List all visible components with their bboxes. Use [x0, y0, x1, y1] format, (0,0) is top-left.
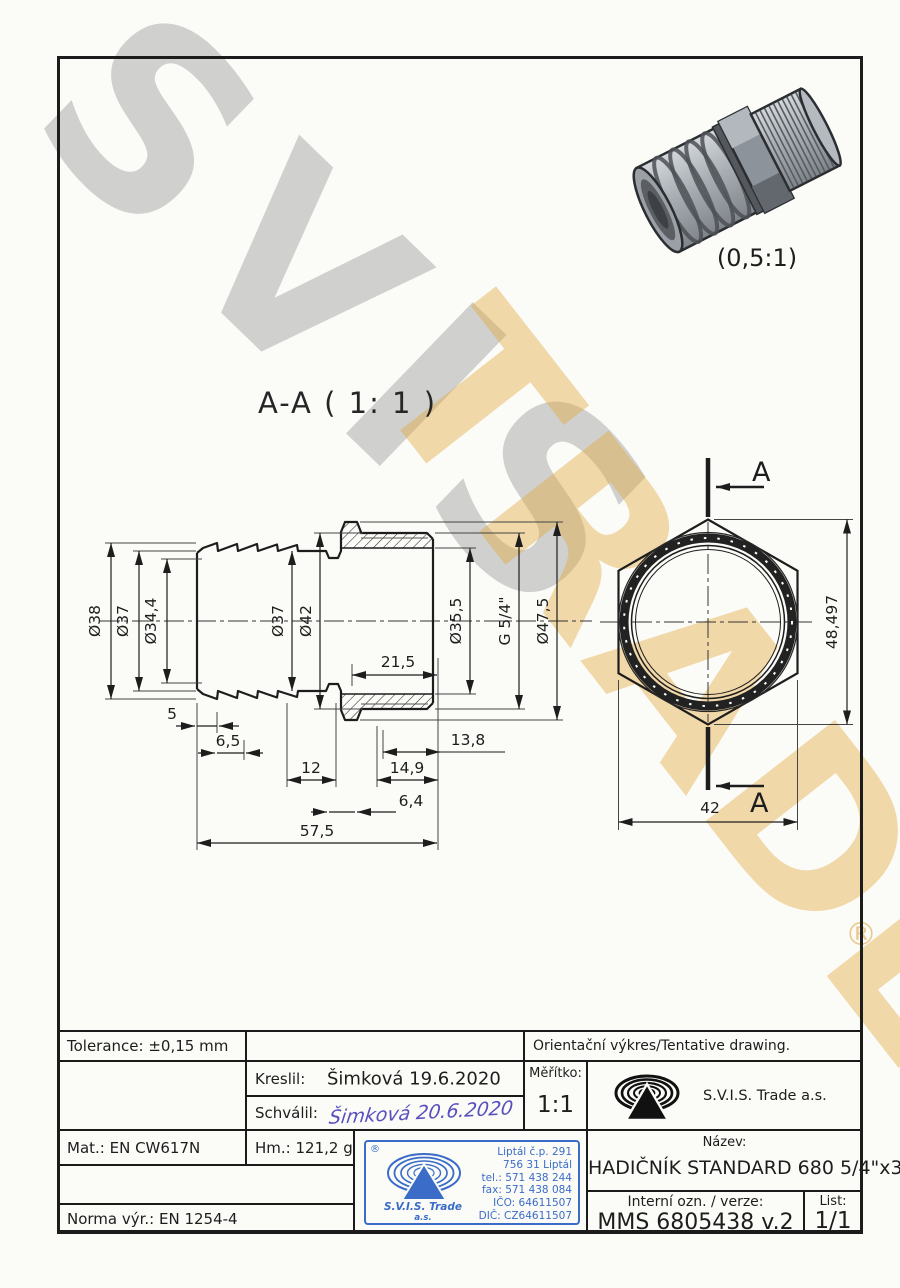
hex-view: A A — [600, 457, 816, 819]
cut-letter-top: A — [752, 457, 771, 488]
hex-dimensions — [619, 520, 854, 831]
dim-dia37-left: Ø37 — [114, 605, 132, 637]
dim-g-thread: G 5/4" — [496, 596, 514, 645]
dim-21-5: 21,5 — [381, 653, 416, 671]
section-view-title: A-A ( 1: 1 ) — [258, 386, 437, 420]
dim-dia38: Ø38 — [86, 605, 104, 637]
dim-hex-across-flats: 42 — [700, 799, 720, 817]
cut-letter-bottom: A — [750, 788, 769, 819]
dim-6-5: 6,5 — [216, 732, 241, 750]
dim-hex-across-corners: 48,497 — [823, 595, 841, 649]
dim-57-5: 57,5 — [300, 822, 335, 840]
dim-dia47-5: Ø47,5 — [534, 598, 552, 645]
3d-render — [623, 79, 849, 262]
drawing-canvas: (0,5:1) A-A ( 1: 1 ) — [0, 0, 900, 1288]
dim-13-8: 13,8 — [451, 731, 486, 749]
dim-14-9: 14,9 — [390, 759, 425, 777]
section-view — [100, 522, 592, 720]
dim-dia34-4: Ø34,4 — [142, 598, 160, 645]
dim-5: 5 — [167, 705, 177, 723]
dim-12: 12 — [301, 759, 321, 777]
dim-dia35-5: Ø35,5 — [447, 598, 465, 645]
extension-lines — [105, 522, 563, 850]
3d-scale-label: (0,5:1) — [717, 244, 797, 272]
dim-dia37-mid: Ø37 — [269, 605, 287, 637]
dimension-labels: Ø38 Ø37 Ø34,4 Ø37 Ø42 Ø35,5 G 5/4" Ø47,5… — [86, 596, 552, 840]
dim-dia42: Ø42 — [297, 605, 315, 637]
dim-6-4: 6,4 — [399, 792, 424, 810]
